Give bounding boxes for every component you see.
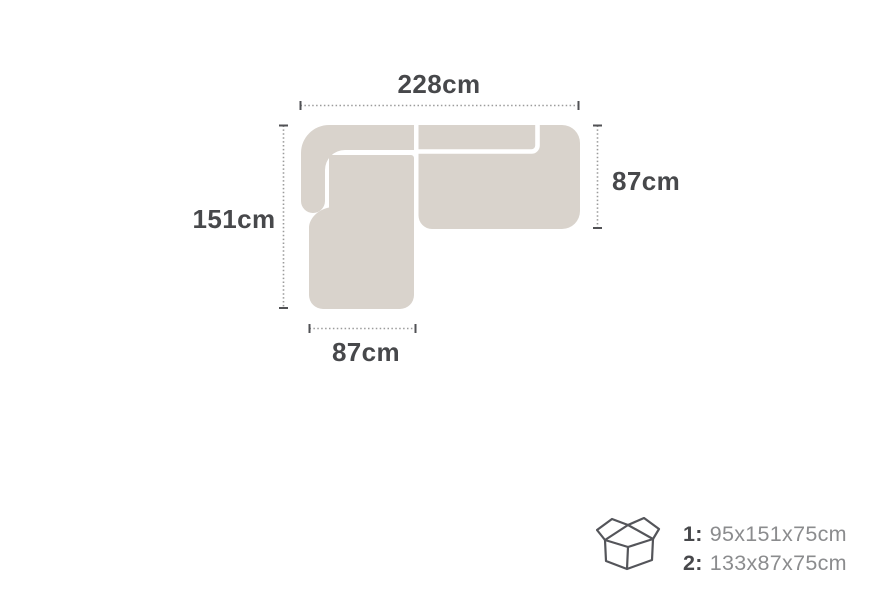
box-2-dimensions: 133x87x75cm [710,551,847,575]
sofa-shape [301,125,580,309]
box-1-dimensions: 95x151x75cm [710,522,847,546]
dimension-label-left: 151cm [193,206,276,232]
packaging-size-item-2: 2:133x87x75cm [683,549,847,578]
dimension-ticks-top [301,101,579,110]
sofa-right-section [419,125,581,229]
packaging-size-item-1: 1:95x151x75cm [683,520,847,549]
dimension-label-bottom: 87cm [332,339,400,365]
dimension-label-top: 228cm [398,71,481,97]
box-icon-strokes [597,518,659,569]
packaging-sizes: 1:95x151x75cm 2:133x87x75cm [683,520,847,578]
box-2-number: 2: [683,551,703,575]
sofa-dimensions-diagram: 228cm 87cm 151cm 87cm 1:95x151x75cm 2:13… [0,0,880,600]
box-1-number: 1: [683,522,703,546]
dimension-label-right: 87cm [612,168,680,194]
box-icon [596,517,662,575]
